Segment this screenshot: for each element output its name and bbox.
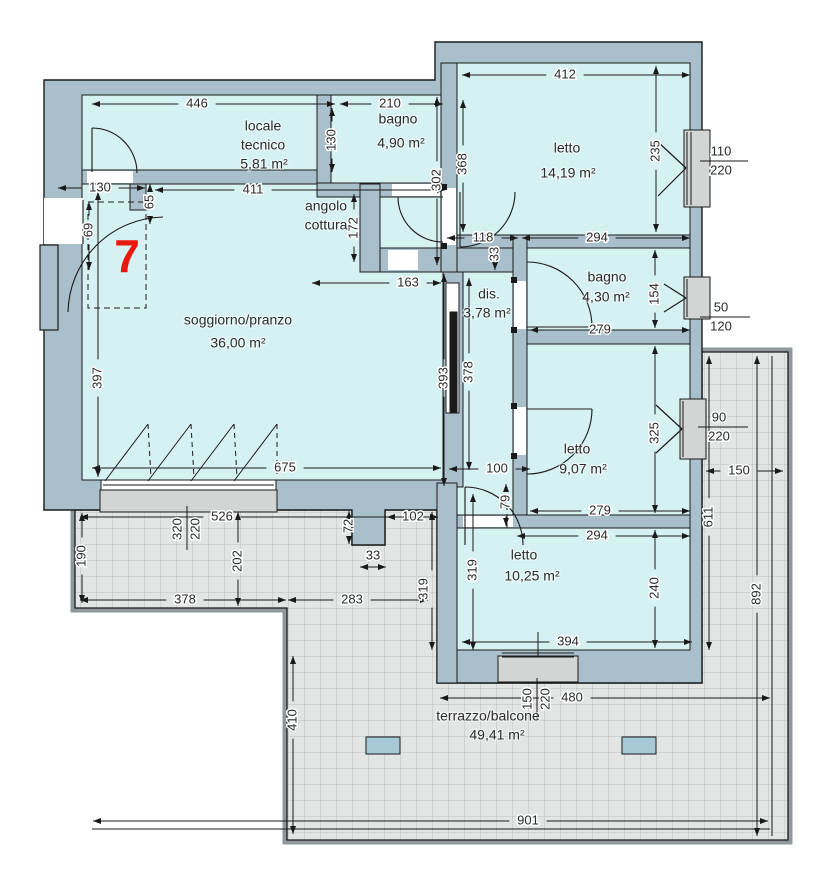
dimension-label: 410 bbox=[284, 709, 299, 731]
dimension-label: 320 bbox=[169, 518, 184, 540]
unit-number: 7 bbox=[114, 230, 140, 282]
dimension-label: 526 bbox=[211, 508, 233, 523]
room-label: 10,25 m² bbox=[504, 568, 560, 584]
plan-shape bbox=[511, 327, 517, 333]
dimension-label: 102 bbox=[402, 508, 424, 523]
dimension-label: 279 bbox=[589, 502, 611, 517]
dimension-label: 210 bbox=[379, 95, 401, 110]
dimension-label: 892 bbox=[748, 583, 763, 605]
dimension-label: 393 bbox=[435, 367, 450, 389]
floor-plan-page: { "plan": { "unit_number": "7", "type_la… bbox=[0, 0, 822, 883]
opening bbox=[514, 407, 526, 455]
wall bbox=[360, 184, 380, 272]
dimension-label: 394 bbox=[557, 633, 579, 648]
dimension-label: 283 bbox=[341, 591, 363, 606]
dimension-label: 611 bbox=[700, 507, 715, 528]
dimension-label: 120 bbox=[710, 318, 732, 333]
room-label: 36,00 m² bbox=[210, 335, 266, 351]
dimension-label: 901 bbox=[517, 812, 539, 827]
dimension-label: 378 bbox=[174, 591, 196, 606]
dimension-label: 319 bbox=[415, 578, 430, 600]
dimension-label: 235 bbox=[647, 140, 662, 162]
room-label: locale bbox=[245, 118, 282, 134]
dimension-label: 279 bbox=[589, 321, 611, 336]
room-label: dis. bbox=[478, 286, 500, 302]
room-label: soggiorno/pranzo bbox=[184, 312, 292, 328]
dimension-label: 154 bbox=[646, 283, 661, 305]
dimension-label: 118 bbox=[473, 229, 494, 244]
room-label: letto bbox=[564, 441, 591, 457]
dimension-label: 202 bbox=[229, 550, 244, 572]
dimension-label: 150 bbox=[728, 462, 750, 477]
skylight bbox=[622, 737, 656, 754]
room-label: letto bbox=[511, 547, 538, 563]
dimension-label: 240 bbox=[646, 577, 661, 599]
plan-shape bbox=[511, 277, 517, 283]
room-label: terrazzo/balcone bbox=[436, 708, 540, 724]
window-sill bbox=[684, 130, 710, 207]
room-label: letto bbox=[554, 140, 581, 156]
dimension-label: 220 bbox=[708, 428, 730, 443]
dimension-label: 172 bbox=[345, 217, 360, 239]
dimension-label: 302 bbox=[428, 169, 443, 191]
dimension-label: 90 bbox=[712, 409, 726, 424]
floor-letto-9 bbox=[527, 344, 690, 515]
dimension-label: 446 bbox=[186, 95, 208, 110]
wall bbox=[437, 483, 457, 683]
dimension-label: 411 bbox=[243, 181, 264, 196]
room-label: 14,19 m² bbox=[540, 165, 596, 181]
opening bbox=[442, 188, 456, 245]
dimension-label: 130 bbox=[323, 129, 338, 151]
room-label: 3,78 m² bbox=[463, 305, 511, 321]
room-label: 49,41 m² bbox=[469, 727, 525, 743]
dimension-label: 72 bbox=[340, 519, 355, 533]
entry-opening bbox=[44, 198, 83, 244]
dimension-label: 220 bbox=[537, 688, 552, 710]
dimension-label: 294 bbox=[586, 229, 608, 244]
window-sill bbox=[498, 656, 578, 682]
dimension-label: 190 bbox=[73, 545, 88, 567]
dimension-label: 378 bbox=[460, 361, 475, 383]
room-label: 9,07 m² bbox=[559, 461, 607, 477]
window-sill bbox=[684, 277, 710, 319]
room-label: 5,81 m² bbox=[240, 156, 288, 172]
dimension-label: 294 bbox=[586, 527, 608, 542]
room-label: bagno bbox=[588, 269, 627, 285]
dimension-label: 65 bbox=[141, 195, 156, 209]
dimension-label: 368 bbox=[454, 153, 469, 175]
glazed-panel-bar bbox=[450, 312, 457, 412]
dimension-label: 412 bbox=[554, 66, 576, 81]
wall-pier bbox=[40, 245, 58, 330]
dimension-label: 319 bbox=[464, 559, 479, 581]
dimension-label: 33 bbox=[486, 247, 501, 261]
dimension-label: 79 bbox=[497, 495, 512, 509]
dimension-label: 480 bbox=[561, 689, 583, 704]
dimension-label: 110 bbox=[711, 143, 732, 158]
plan-shape bbox=[511, 453, 517, 459]
dimension-label: 100 bbox=[486, 460, 508, 475]
room-label: tecnico bbox=[241, 137, 286, 153]
plan-shape bbox=[511, 403, 517, 409]
opening bbox=[514, 281, 526, 329]
skylight bbox=[366, 737, 400, 754]
opening bbox=[388, 250, 418, 270]
dimension-label: 50 bbox=[714, 299, 728, 314]
sliding-door-sill bbox=[100, 490, 277, 512]
room-label: angolo bbox=[305, 198, 347, 214]
dimension-label: 130 bbox=[89, 179, 111, 194]
dimension-label: 325 bbox=[646, 422, 661, 444]
dimension-label: 33 bbox=[366, 547, 380, 562]
room-label: 4,30 m² bbox=[582, 289, 630, 305]
window-sill bbox=[680, 399, 706, 459]
dimension-label: 69 bbox=[80, 223, 95, 237]
dimension-label: 220 bbox=[710, 162, 732, 177]
dimension-label: 675 bbox=[274, 459, 296, 474]
floor-soggiorno bbox=[82, 184, 443, 480]
room-label: bagno bbox=[379, 111, 418, 127]
dimension-label: 150 bbox=[519, 688, 534, 710]
room-label: cottura bbox=[305, 217, 348, 233]
plan-shape bbox=[441, 243, 447, 249]
dimension-label: 220 bbox=[187, 518, 202, 540]
dimension-label: 397 bbox=[89, 367, 104, 389]
floor-plan-drawing: 4462104121304111182941632796751002792943… bbox=[0, 0, 822, 883]
room-label: 4,90 m² bbox=[377, 135, 425, 151]
dimension-label: 163 bbox=[397, 274, 419, 289]
